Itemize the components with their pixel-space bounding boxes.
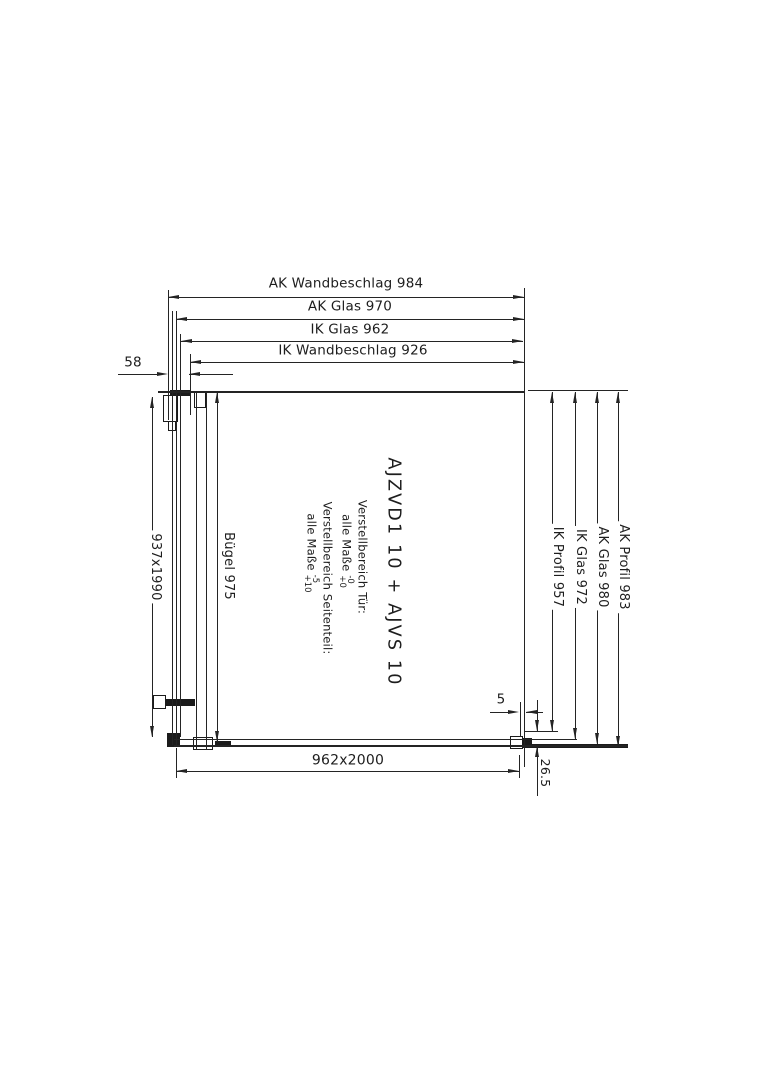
drawing-line-horizontal (190, 362, 524, 363)
note-door-adjustment-text: alle Maße (340, 514, 354, 571)
dim-label-26-5: 26.5 (538, 759, 552, 788)
drawing-line-vertical (172, 311, 173, 745)
product-title: AJZVD1 10 + AJVS 10 (383, 457, 402, 686)
drawing-line-vertical (206, 391, 207, 750)
drawing-line-vertical (168, 290, 169, 420)
drawing-line-horizontal (526, 712, 543, 713)
door-tolerance-stack: -0+0 (338, 575, 354, 588)
drawing-line-horizontal (189, 374, 233, 375)
drawing-line-vertical (190, 354, 191, 415)
dim-label-ik-glas-962: IK Glas 962 (311, 323, 390, 338)
drawing-line-vertical (524, 288, 525, 767)
drawing-line-horizontal (174, 739, 577, 740)
hardware-shape (153, 695, 166, 709)
drawing-line-horizontal (118, 374, 160, 375)
note-side-adjustment-text: alle Maße (305, 513, 319, 570)
drawing-line-horizontal (176, 319, 524, 320)
drawing-line-vertical (537, 700, 538, 731)
door-tolerance-lower: +0 (338, 575, 346, 588)
dim-label-ik-wandbeschlag-926: IK Wandbeschlag 926 (278, 344, 427, 359)
note-door-adjustment-title: Verstellbereich Tür: (356, 500, 369, 614)
drawing-line-horizontal (158, 391, 524, 393)
drawing-line-vertical (180, 334, 181, 737)
drawing-line-vertical (519, 755, 520, 778)
dim-label-ik-profil-957: IK Profil 957 (550, 524, 564, 610)
note-side-adjustment-value: alle Maße-5+10 (303, 513, 319, 592)
dim-label-ak-wandbeschlag-984: AK Wandbeschlag 984 (269, 277, 424, 292)
drawing-line-vertical (176, 311, 177, 745)
drawing-line-vertical (217, 392, 218, 742)
dim-label-ik-glas-972: IK Glas 972 (573, 526, 587, 608)
dim-label-buegel-975: Bügel 975 (221, 529, 235, 603)
dim-label-ak-profil-983: AK Profil 983 (616, 521, 630, 613)
hardware-shape (510, 736, 523, 749)
dim-label-5: 5 (497, 693, 506, 708)
dim-label-ak-glas-980: AK Glas 980 (595, 523, 609, 610)
drawing-line-horizontal (528, 390, 628, 391)
dim-label-ak-glas-970: AK Glas 970 (308, 300, 392, 315)
drawing-line-vertical (176, 748, 177, 778)
drawing-line-vertical (196, 391, 197, 750)
dim-label-962x2000: 962x2000 (312, 753, 384, 768)
door-tolerance-upper: -0 (346, 575, 354, 588)
note-side-adjustment-title: Verstellbereich Seitenteil: (321, 502, 334, 655)
dim-label-door-glass-937x1990: 937x1990 (148, 530, 162, 603)
drawing-line-horizontal (174, 745, 628, 747)
side-tolerance-lower: +10 (303, 575, 311, 593)
drawing-line-vertical (520, 702, 521, 737)
technical-drawing-canvas: AK Wandbeschlag 984 AK Glas 970 IK Glas … (0, 0, 763, 1080)
note-door-adjustment-value: alle Maße-0+0 (338, 514, 354, 588)
drawing-line-horizontal (524, 731, 558, 732)
drawing-line-horizontal (490, 712, 510, 713)
side-tolerance-upper: -5 (311, 575, 319, 593)
dim-label-58: 58 (124, 356, 142, 371)
drawing-line-horizontal (176, 771, 519, 772)
side-tolerance-stack: -5+10 (303, 575, 319, 593)
